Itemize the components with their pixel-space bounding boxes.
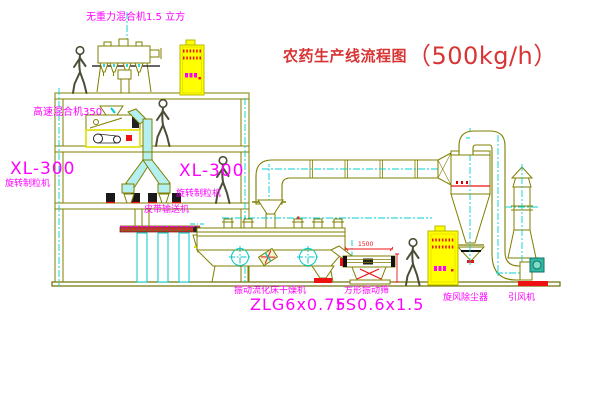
control-cabinet-bottom: [428, 226, 458, 285]
diagram-title-text: 农药生产线流程图: [283, 49, 407, 68]
belt-conveyor-drawing: [120, 226, 200, 282]
label-cyclone: 旋风除尘器: [443, 294, 488, 303]
label-granulator-right-name: 旋转制粒机: [176, 190, 221, 199]
diagram-title-capacity: （500kg/h）: [407, 44, 558, 68]
label-gravity-free-mixer: 无重力混合机1.5 立方: [86, 13, 185, 23]
label-granulator-right-model: XL-300: [179, 163, 244, 180]
dimension-sieve-length: 1500: [358, 242, 373, 248]
label-granulator-left-model: XL-300: [10, 161, 75, 178]
label-dryer-model: ZLG6x0.75: [250, 297, 347, 313]
label-high-speed-mixer: 高速混合机350: [33, 108, 102, 118]
diagram-title: 农药生产线流程图（500kg/h）: [283, 44, 558, 68]
person-figure: [156, 100, 170, 146]
label-granulator-left-name: 旋转制粒机: [5, 180, 50, 189]
label-belt-conveyor: 皮带输送机: [144, 206, 189, 215]
gravity-free-mixer-drawing: [92, 12, 161, 93]
ground-line: [52, 282, 560, 286]
induced-fan-drawing: [518, 258, 548, 286]
label-sieve-model: FS0.6x1.5: [336, 297, 424, 313]
y-duct: [122, 152, 170, 193]
pesticide-production-line-diagram: 农药生产线流程图（500kg/h） 无重力混合机1.5 立方 高速混合机350 …: [0, 0, 600, 403]
control-cabinet-top: [180, 40, 204, 95]
person-figure: [406, 239, 420, 285]
label-fan: 引风机: [508, 294, 535, 303]
person-figure: [73, 47, 87, 93]
granulators-drawing: [106, 193, 181, 203]
